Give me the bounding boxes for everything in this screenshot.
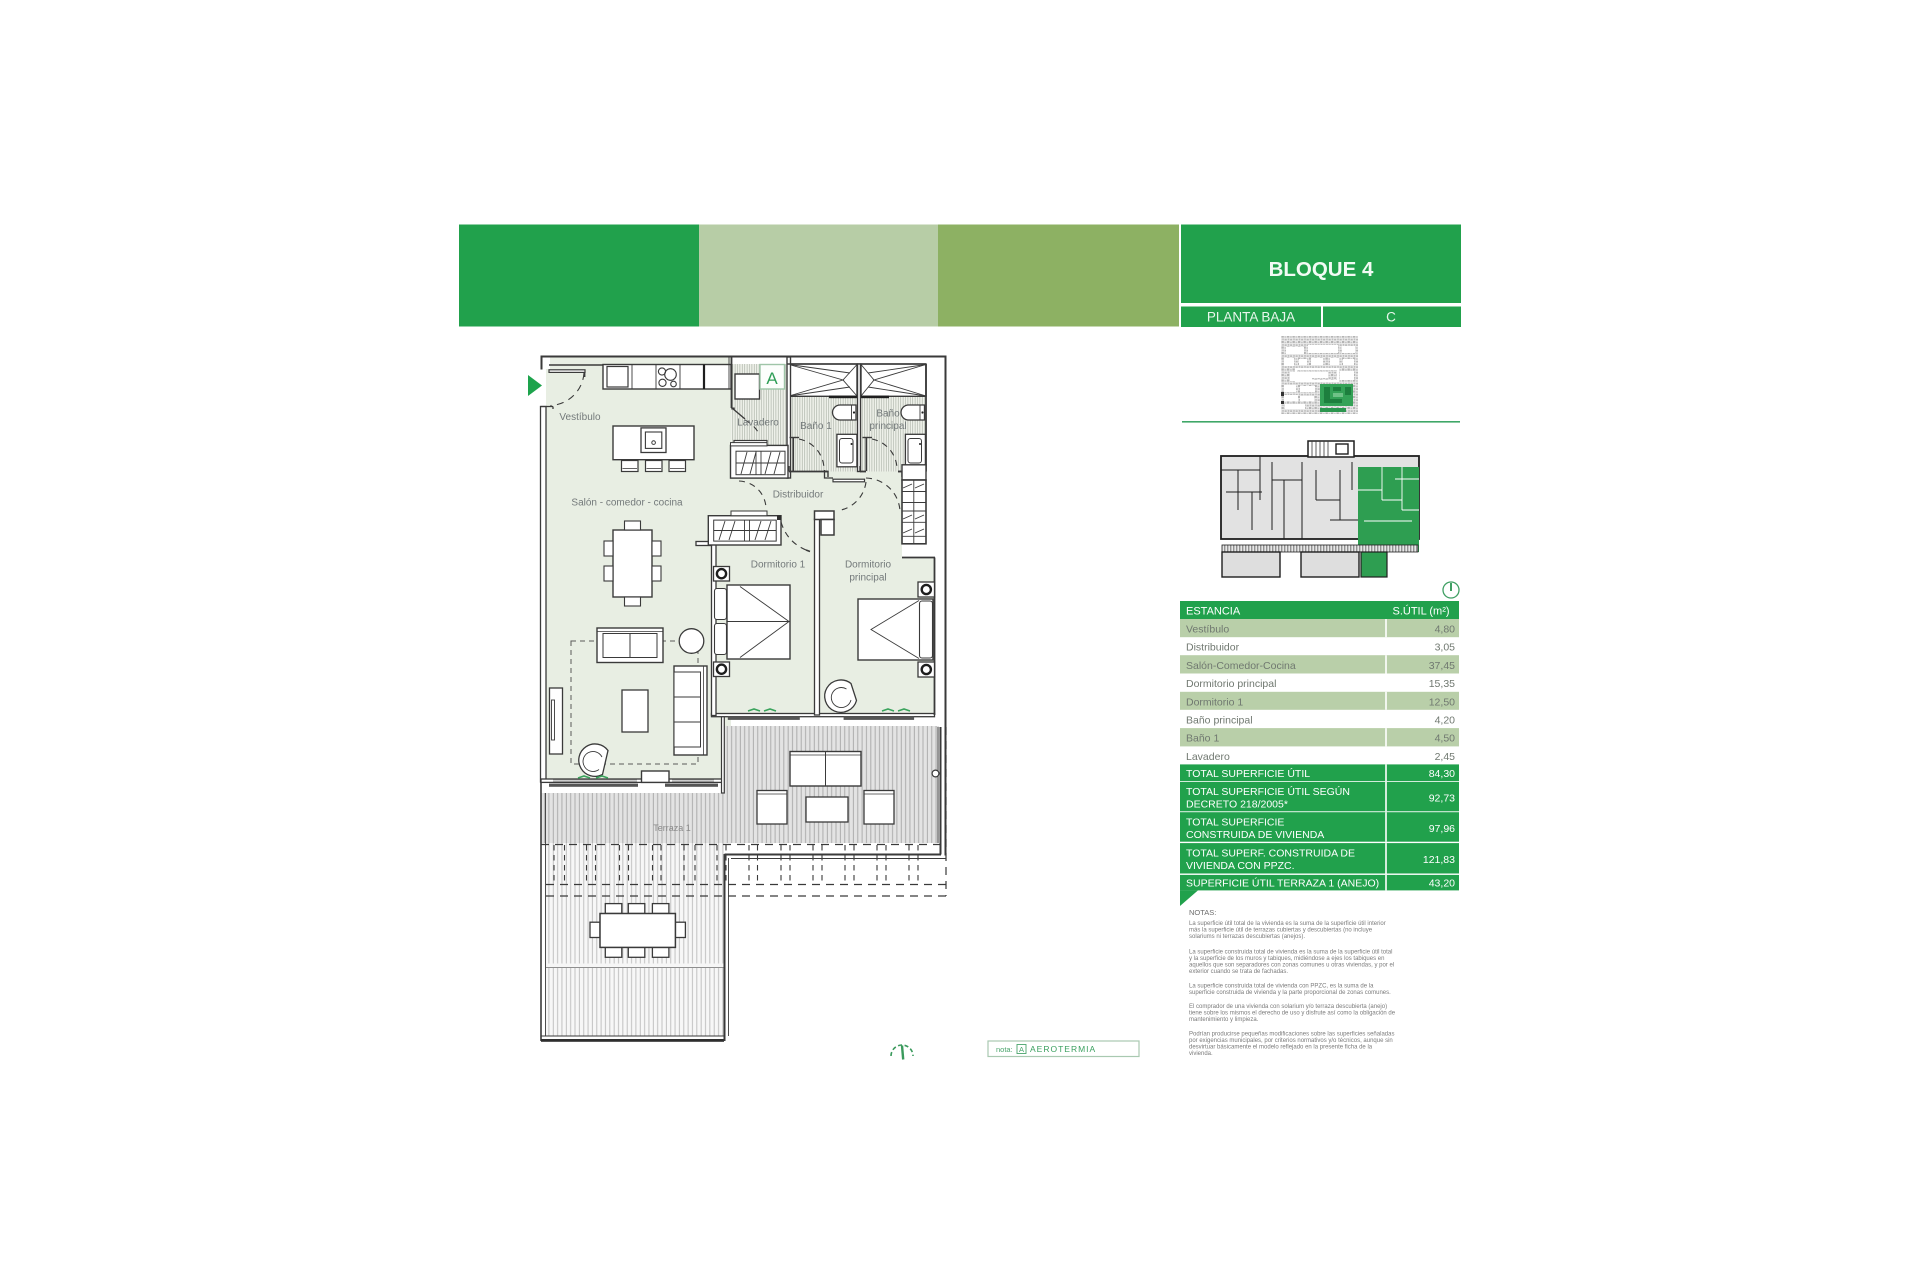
svg-text:NOTAS:: NOTAS: xyxy=(1189,908,1216,917)
svg-text:desvirtuar básicamente el mode: desvirtuar básicamente el modelo refleja… xyxy=(1189,1045,1373,1051)
svg-text:VIVIENDA CON PPZC.: VIVIENDA CON PPZC. xyxy=(1186,860,1295,872)
svg-text:Vestíbulo: Vestíbulo xyxy=(1186,624,1229,636)
svg-text:La superficie útil total de la: La superficie útil total de la vivienda … xyxy=(1189,921,1386,927)
svg-text:37,45: 37,45 xyxy=(1429,660,1455,672)
svg-text:principal: principal xyxy=(869,421,906,432)
svg-text:tiene sobre los mismos el dere: tiene sobre los mismos el derecho de uso… xyxy=(1189,1011,1396,1017)
svg-text:ESTANCIA: ESTANCIA xyxy=(1186,606,1241,618)
svg-text:S.ÚTIL (m²): S.ÚTIL (m²) xyxy=(1392,605,1449,618)
svg-text:TOTAL SUPERF. CONSTRUIDA DE: TOTAL SUPERF. CONSTRUIDA DE xyxy=(1186,847,1355,859)
svg-text:DECRETO 218/2005*: DECRETO 218/2005* xyxy=(1186,799,1288,811)
svg-text:A: A xyxy=(1019,1045,1024,1054)
svg-text:exterior cuando se trata de fa: exterior cuando se trata de fachadas. xyxy=(1189,969,1288,975)
svg-text:TOTAL SUPERFICIE: TOTAL SUPERFICIE xyxy=(1186,816,1284,828)
svg-text:A: A xyxy=(766,369,778,388)
svg-text:TOTAL SUPERFICIE ÚTIL SEGÚN: TOTAL SUPERFICIE ÚTIL SEGÚN xyxy=(1186,785,1350,798)
svg-text:más la superficie útil de terr: más la superficie útil de terrazas cubie… xyxy=(1189,928,1373,934)
svg-text:BLOQUE 4: BLOQUE 4 xyxy=(1269,258,1374,281)
svg-text:por exigencias municipales, po: por exigencias municipales, por criterio… xyxy=(1189,1038,1393,1044)
svg-text:Terraza 1: Terraza 1 xyxy=(653,823,691,833)
svg-text:Lavadero: Lavadero xyxy=(737,418,779,429)
svg-text:El comprador de una vivienda c: El comprador de una vivienda con solariu… xyxy=(1189,1004,1387,1010)
svg-text:Dormitorio 1: Dormitorio 1 xyxy=(751,560,806,571)
svg-text:Dormitorio principal: Dormitorio principal xyxy=(1186,678,1276,690)
svg-text:2,45: 2,45 xyxy=(1435,751,1456,763)
svg-text:4,20: 4,20 xyxy=(1435,715,1456,727)
svg-text:15,35: 15,35 xyxy=(1429,678,1455,690)
svg-text:4,80: 4,80 xyxy=(1435,624,1456,636)
svg-text:43,20: 43,20 xyxy=(1429,878,1455,890)
svg-text:y la superficie de los muros y: y la superficie de los muros y tabiques,… xyxy=(1189,956,1384,962)
svg-text:Baño: Baño xyxy=(876,409,900,420)
svg-text:nota:: nota: xyxy=(996,1045,1013,1054)
svg-text:121,83: 121,83 xyxy=(1423,854,1455,866)
svg-text:solariums ni terrazas descubie: solariums ni terrazas descubiertas (anej… xyxy=(1189,934,1305,940)
svg-text:vivienda.: vivienda. xyxy=(1189,1051,1213,1057)
svg-text:principal: principal xyxy=(849,573,886,584)
svg-text:Lavadero: Lavadero xyxy=(1186,751,1230,763)
svg-text:92,73: 92,73 xyxy=(1429,793,1455,805)
svg-text:C: C xyxy=(1386,310,1396,325)
svg-text:mantenimiento y limpieza.: mantenimiento y limpieza. xyxy=(1189,1017,1259,1023)
svg-text:4,50: 4,50 xyxy=(1435,733,1456,745)
svg-text:aquellos que son separadores c: aquellos que son separadores con zonas c… xyxy=(1189,963,1394,969)
svg-text:Dormitorio 1: Dormitorio 1 xyxy=(1186,696,1243,708)
svg-text:Baño 1: Baño 1 xyxy=(1186,733,1219,745)
svg-text:Salón-Comedor-Cocina: Salón-Comedor-Cocina xyxy=(1186,660,1296,672)
svg-text:La superficie construida total: La superficie construida total de vivien… xyxy=(1189,984,1374,990)
svg-text:3,05: 3,05 xyxy=(1435,642,1456,654)
svg-text:TOTAL SUPERFICIE ÚTIL: TOTAL SUPERFICIE ÚTIL xyxy=(1186,767,1310,780)
svg-text:Vestíbulo: Vestíbulo xyxy=(559,412,601,423)
svg-text:CONSTRUIDA DE VIVIENDA: CONSTRUIDA DE VIVIENDA xyxy=(1186,829,1324,841)
svg-text:Baño 1: Baño 1 xyxy=(800,421,832,432)
svg-text:Dormitorio: Dormitorio xyxy=(845,560,892,571)
svg-text:84,30: 84,30 xyxy=(1429,768,1455,780)
svg-text:La superficie construida total: La superficie construida total de vivien… xyxy=(1189,950,1392,956)
svg-text:12,50: 12,50 xyxy=(1429,696,1455,708)
svg-text:PLANTA BAJA: PLANTA BAJA xyxy=(1207,310,1295,325)
svg-text:Baño principal: Baño principal xyxy=(1186,715,1253,727)
svg-text:Salón - comedor - cocina: Salón - comedor - cocina xyxy=(571,498,683,509)
svg-text:Distribuidor: Distribuidor xyxy=(773,490,824,501)
svg-text:superficie construida de vivie: superficie construida de vivienda y la p… xyxy=(1189,990,1391,996)
svg-text:Podrían producirse pequeñas mo: Podrían producirse pequeñas modificacion… xyxy=(1189,1032,1394,1038)
svg-text:SUPERFICIE ÚTIL TERRAZA 1 (ANE: SUPERFICIE ÚTIL TERRAZA 1 (ANEJO) xyxy=(1186,877,1379,890)
svg-text:Distribuidor: Distribuidor xyxy=(1186,642,1240,654)
svg-text:97,96: 97,96 xyxy=(1429,823,1455,835)
svg-text:AEROTERMIA: AEROTERMIA xyxy=(1030,1044,1096,1054)
